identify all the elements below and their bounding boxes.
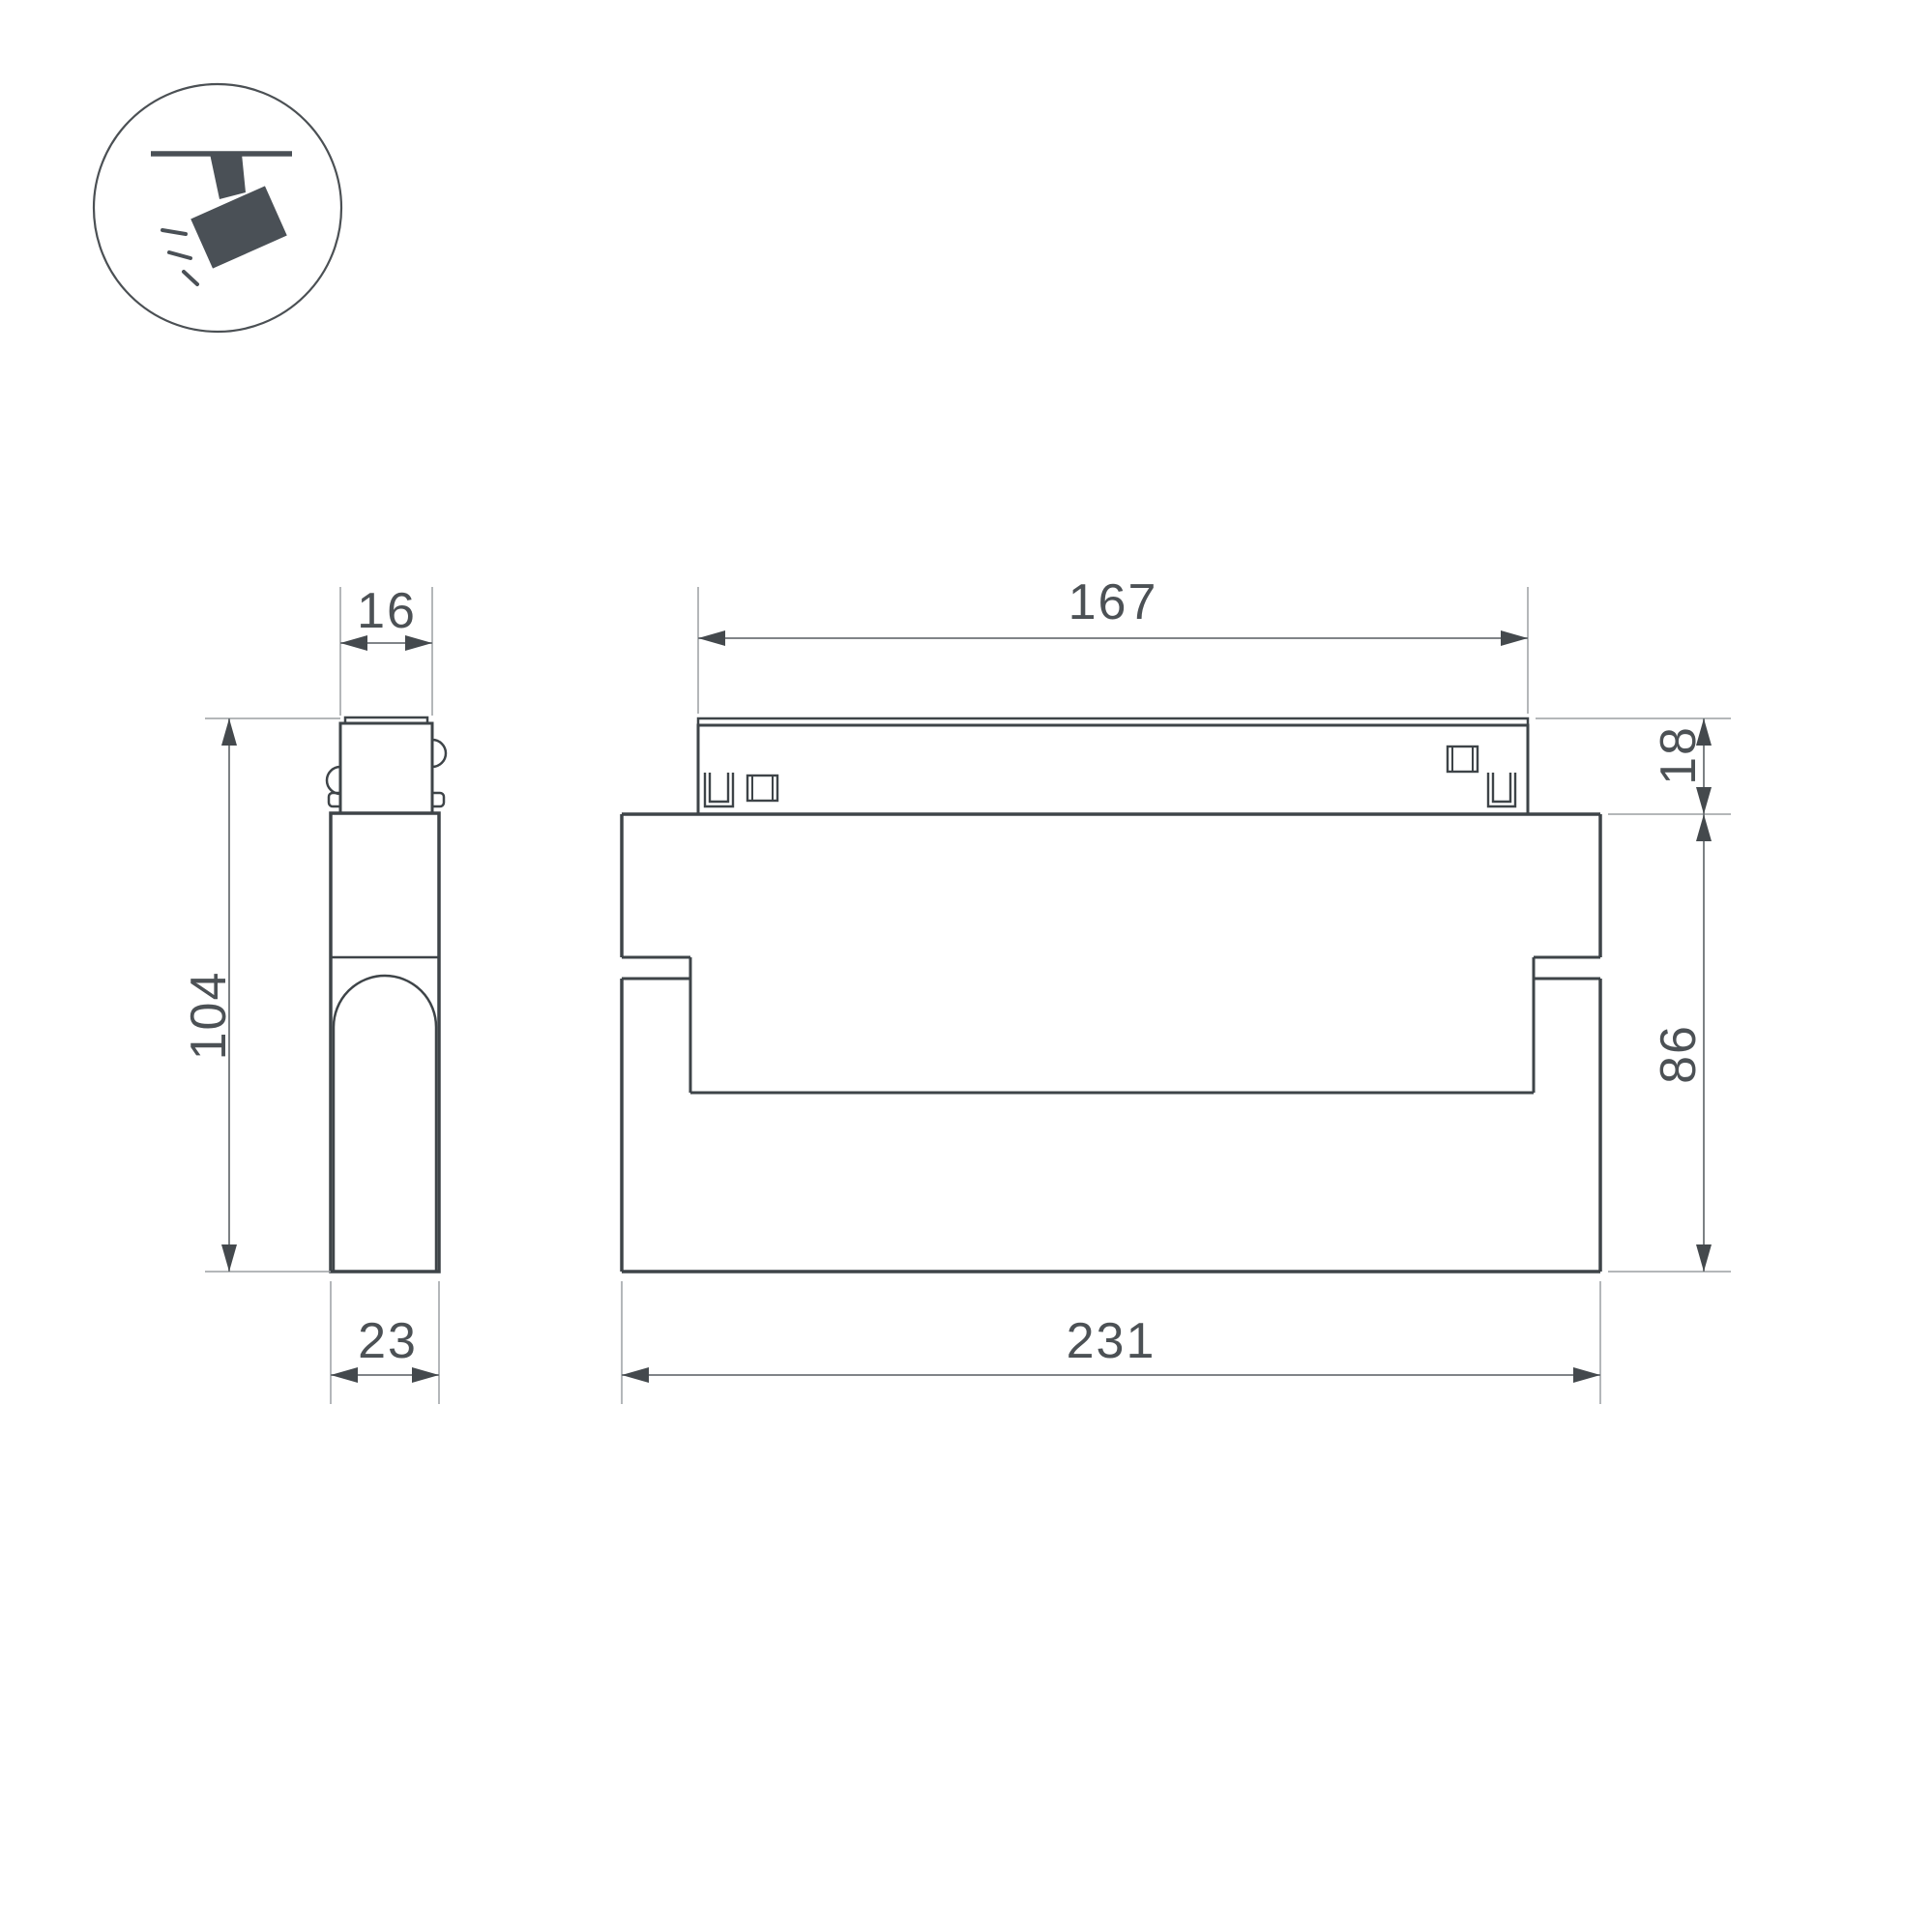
arrow-up xyxy=(1696,814,1712,841)
arrow-down xyxy=(1696,787,1712,814)
dim-label-104: 104 xyxy=(181,971,237,1061)
technical-drawing: 16 104 23 xyxy=(0,0,1932,1932)
side-body xyxy=(331,813,439,1272)
dim-side-height: 104 xyxy=(181,718,340,1272)
dim-label-23: 23 xyxy=(358,1313,418,1369)
side-adapter-body xyxy=(340,723,432,813)
dim-label-231: 231 xyxy=(1067,1313,1156,1369)
dim-label-16: 16 xyxy=(357,583,417,639)
arrow-left xyxy=(622,1367,649,1383)
arrow-right xyxy=(1501,630,1528,646)
dim-side-top-width: 16 xyxy=(340,583,432,716)
side-left-clip-bump xyxy=(327,767,340,794)
arrow-down xyxy=(221,1244,237,1272)
arrow-up xyxy=(221,718,237,746)
side-view xyxy=(327,717,446,1272)
icon-light-rays xyxy=(162,230,197,284)
arrow-left xyxy=(698,630,725,646)
side-right-clip-hook xyxy=(432,793,444,806)
dim-label-18: 18 xyxy=(1651,725,1707,785)
arrow-down xyxy=(1696,1244,1712,1272)
arrow-left xyxy=(331,1367,358,1383)
dim-label-86: 86 xyxy=(1651,1024,1707,1084)
arrow-right xyxy=(1573,1367,1600,1383)
front-view xyxy=(622,718,1600,1272)
dim-side-bottom-width: 23 xyxy=(331,1281,439,1404)
icon-mount-stub xyxy=(210,154,246,199)
dim-label-167: 167 xyxy=(1068,574,1158,630)
front-adapter-band xyxy=(698,725,1528,814)
dim-front-adapter-height: 18 xyxy=(1536,718,1731,814)
dim-front-track-width: 167 xyxy=(698,574,1528,714)
arrow-right xyxy=(412,1367,439,1383)
track-spotlight-icon xyxy=(94,84,341,332)
dim-front-body-height: 86 xyxy=(1608,814,1731,1272)
icon-lamp-head xyxy=(190,186,287,268)
front-body-outline xyxy=(622,814,1600,1272)
side-right-clip-bump xyxy=(432,740,446,767)
drawing-canvas: 16 104 23 xyxy=(0,0,1932,1932)
dim-front-body-width: 231 xyxy=(622,1281,1600,1404)
